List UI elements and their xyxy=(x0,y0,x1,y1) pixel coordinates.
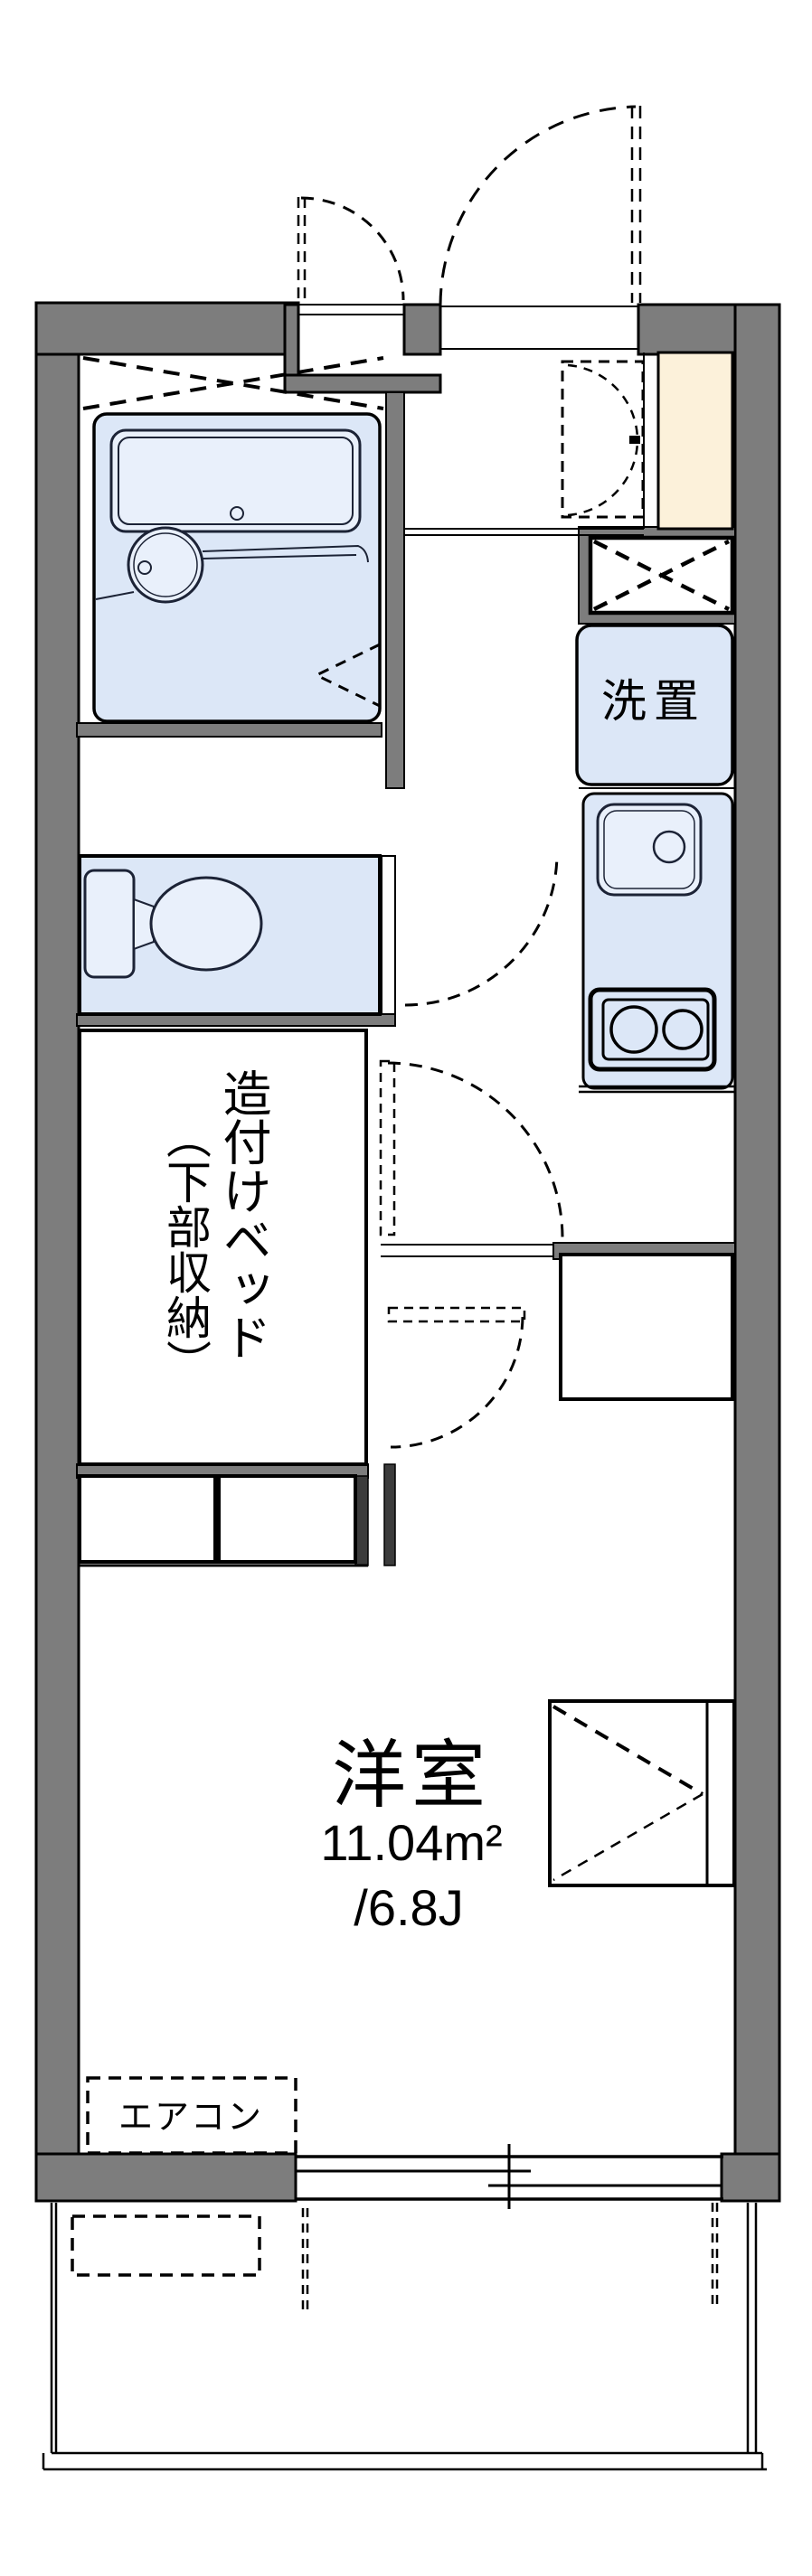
bathtub xyxy=(111,430,360,531)
bed-side-shelf xyxy=(80,1476,368,1565)
bed-label-main: 造付けベッド xyxy=(215,1068,270,1361)
room-name: 洋室 xyxy=(332,1735,491,1817)
wall-corridor xyxy=(386,392,404,788)
wall-entry-pillar xyxy=(404,305,440,354)
toilet-tank xyxy=(85,870,134,977)
bed-label-sub: （下部収納） xyxy=(160,1114,211,1385)
stove xyxy=(590,990,714,1069)
room-tatami: /6.8J xyxy=(354,1879,463,1936)
wall-top-left xyxy=(36,303,298,354)
aircon-label: エアコン xyxy=(118,2099,263,2137)
toilet-bowl xyxy=(151,878,261,970)
shelf-end-cap xyxy=(355,1476,368,1565)
wall-left xyxy=(36,303,79,2201)
bathroom-unit xyxy=(94,414,380,721)
wall-bottom-left xyxy=(36,2154,296,2201)
washer-space: 洗置 xyxy=(577,625,732,785)
sink-drain xyxy=(654,832,685,862)
burner-right xyxy=(664,1011,702,1048)
wash-basin xyxy=(128,528,203,602)
bay-window xyxy=(550,1701,734,1885)
toilet-room xyxy=(80,856,395,1014)
toilet-fixture xyxy=(85,870,261,977)
kitchen-sink xyxy=(598,804,701,895)
door-meet-mark xyxy=(629,436,640,444)
wall-bottom-right xyxy=(722,2154,779,2201)
bed-room: 造付けベッド （下部収納） xyxy=(80,1030,366,1464)
floorplan-canvas: 洗置 造付けベッド （下部収納） xyxy=(0,0,812,2576)
room-area: 11.04m² xyxy=(320,1814,502,1871)
refrigerator-space xyxy=(590,538,732,613)
wall-door-stub xyxy=(384,1464,395,1565)
storage-counter xyxy=(561,1255,732,1399)
wall-right xyxy=(735,305,779,2201)
genkan-floor xyxy=(658,353,732,529)
wall-alcove-bar xyxy=(285,375,440,392)
burner-left xyxy=(611,1007,656,1052)
toilet-door xyxy=(382,856,395,1014)
wall-bath-bottom xyxy=(77,723,382,737)
kitchen-counter xyxy=(579,788,735,1092)
washer-label: 洗置 xyxy=(601,676,706,727)
